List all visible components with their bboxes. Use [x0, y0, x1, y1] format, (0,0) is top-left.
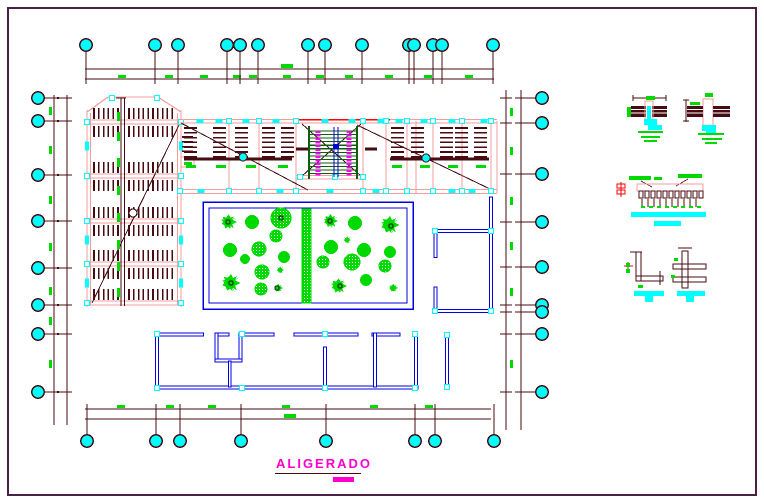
left-slab-block	[85, 96, 184, 308]
page-border	[8, 8, 756, 495]
floor-plan-canvas	[0, 0, 764, 504]
cad-sheet: ALIGERADO	[0, 0, 764, 504]
walls	[155, 197, 494, 391]
drawing-title-highlight	[333, 477, 354, 482]
staircase	[309, 126, 358, 179]
drawing-title: ALIGERADO	[276, 456, 360, 471]
detail-sections	[617, 93, 730, 302]
drawing-title-underline	[275, 473, 361, 474]
